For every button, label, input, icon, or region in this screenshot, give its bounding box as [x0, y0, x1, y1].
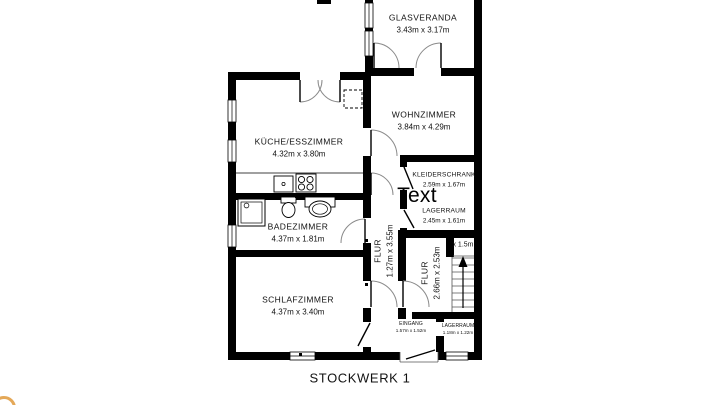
room-dims: 1.18m x 1.22m: [442, 330, 475, 337]
room-label-kueche: KÜCHE/ESSZIMMER 4.32m x 3.80m: [255, 136, 344, 161]
entry-porch-lines: [400, 352, 438, 362]
room-label-schlafzimmer: SCHLAFZIMMER 4.37m x 3.40m: [262, 294, 334, 319]
room-label-lagerraum2: LAGERRAUM 1.18m x 1.22m: [442, 323, 475, 337]
room-label-flur2: FLUR 2.66m x 2.53m: [419, 247, 444, 300]
room-dims: 4.37m x 1.81m: [268, 233, 329, 245]
room-label-badezimmer: BADEZIMMER 4.37m x 1.81m: [268, 221, 329, 246]
dashed-shaft-outline: [344, 90, 362, 108]
room-dims: 3.84m x 4.29m: [392, 121, 456, 133]
kitchen-fixtures: [236, 173, 363, 192]
text-annotation-label: Text: [397, 184, 437, 207]
room-name: EINGANG: [396, 321, 426, 328]
room-name: WOHNZIMMER: [392, 109, 456, 122]
staircase: [452, 256, 474, 312]
room-label-lagerraum: LAGERRAUM 2.45m x 1.61m: [422, 206, 466, 226]
room-label-glasveranda: GLASVERANDA 3.43m x 3.17m: [389, 12, 457, 37]
room-dims: 1.27m x 3.55m: [384, 225, 396, 278]
room-name: LAGERRAUM: [422, 206, 466, 216]
room-name: SCHLAFZIMMER: [262, 294, 334, 307]
room-dims: 4.32m x 3.80m: [255, 148, 344, 160]
floorplan-canvas: GLASVERANDA 3.43m x 3.17m WOHNZIMMER 3.8…: [0, 0, 720, 405]
floorplan-graphics: [0, 0, 720, 405]
room-name: FLUR: [372, 225, 385, 278]
room-name: FLUR: [419, 247, 432, 300]
shower: [238, 199, 265, 226]
stair-width-value: x 1.5m: [452, 242, 473, 249]
room-name: KLEIDERSCHRANK: [412, 170, 475, 180]
floor-title-text: STOCKWERK 1: [310, 371, 411, 386]
room-dims: 2.45m x 1.61m: [422, 216, 466, 226]
room-dims: 2.66m x 2.53m: [431, 247, 443, 300]
text-annotation: Text: [397, 184, 437, 208]
stair-width-note: x 1.5m: [452, 242, 473, 249]
room-name: BADEZIMMER: [268, 221, 329, 234]
room-dims: 4.37m x 3.40m: [262, 306, 334, 318]
washbasin: [305, 197, 335, 217]
room-name: LAGERRAUM: [442, 323, 475, 330]
room-label-eingang: EINGANG 1.57m x 1.52m: [396, 321, 426, 335]
room-dims: 3.43m x 3.17m: [389, 24, 457, 36]
floor-title: STOCKWERK 1: [310, 371, 411, 386]
room-label-flur1: FLUR 1.27m x 3.55m: [372, 225, 397, 278]
room-name: KÜCHE/ESSZIMMER: [255, 136, 344, 149]
toilet: [281, 197, 296, 218]
kitchen-sink: [274, 176, 293, 192]
room-dims: 1.57m x 1.52m: [396, 328, 426, 335]
room-name: GLASVERANDA: [389, 12, 457, 25]
room-label-wohnzimmer: WOHNZIMMER 3.84m x 4.29m: [392, 109, 456, 134]
